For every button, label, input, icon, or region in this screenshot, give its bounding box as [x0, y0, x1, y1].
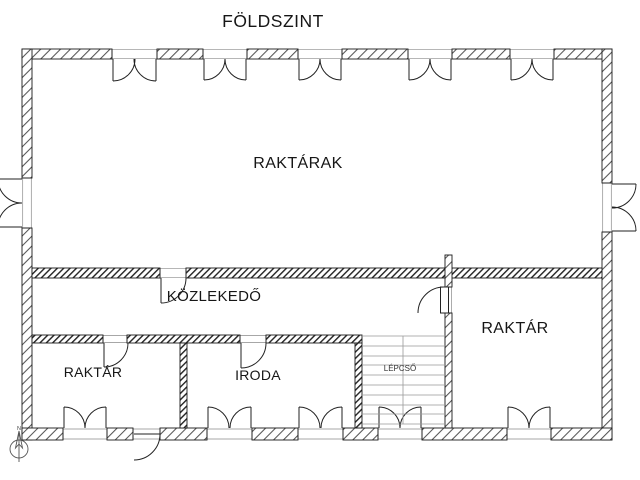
double-door-symbol-top-2: [204, 59, 246, 80]
double-door-symbol-iroda-1: [208, 407, 251, 428]
wall-raktarak-corridor: [32, 268, 602, 278]
double-door-symbol-raktar-right: [508, 407, 550, 428]
room-label-raktar-right: RAKTÁR: [481, 318, 548, 337]
door-symbol-corridor-iroda: [241, 343, 266, 368]
double-door-symbol-top-4: [409, 59, 451, 80]
opening-face-lines: [23, 50, 612, 439]
outer-wall-bottom: [22, 428, 612, 440]
opening-jamb-lines: [22, 49, 612, 440]
room-label-raktarak: RAKTÁRAK: [253, 153, 342, 172]
floor-plan-drawing: N FÖLDSZINT RAKTÁRAK KÖZLEKEDŐ RAKTÁR IR…: [0, 0, 640, 480]
door-symbol-corridor-raktar-right: [418, 287, 449, 313]
exterior-door-symbol-right: [612, 184, 636, 231]
wall-iroda-stairs: [355, 343, 362, 428]
outer-wall-right: [602, 49, 612, 440]
room-label-raktar-left: RAKTÁR: [64, 364, 123, 380]
double-door-symbol-raktar-left: [64, 407, 106, 428]
room-label-lepcso: LÉPCSŐ: [384, 364, 416, 373]
outer-wall-top: [22, 49, 612, 59]
double-door-symbol-iroda-2: [299, 407, 342, 428]
wall-stairs-raktar-right: [445, 255, 452, 428]
double-door-symbol-top-1: [113, 59, 156, 81]
north-label: N: [17, 426, 21, 432]
exterior-door-symbol-bottom: [134, 434, 160, 460]
stairs-symbol: [363, 336, 445, 424]
double-door-symbol-top-3: [299, 59, 341, 80]
room-label-kozlekedo: KÖZLEKEDŐ: [167, 287, 261, 305]
outer-wall-left: [22, 49, 32, 440]
wall-raktar-iroda: [180, 343, 187, 428]
exterior-door-symbol-left: [0, 179, 22, 227]
room-label-iroda: IRODA: [235, 367, 281, 383]
double-door-symbol-top-5: [511, 59, 553, 80]
page-title: FÖLDSZINT: [222, 11, 324, 31]
floor-plan-canvas: N FÖLDSZINT RAKTÁRAK KÖZLEKEDŐ RAKTÁR IR…: [0, 0, 640, 480]
wall-corridor-rooms: [32, 335, 362, 343]
double-door-symbol-stairs: [379, 407, 421, 428]
